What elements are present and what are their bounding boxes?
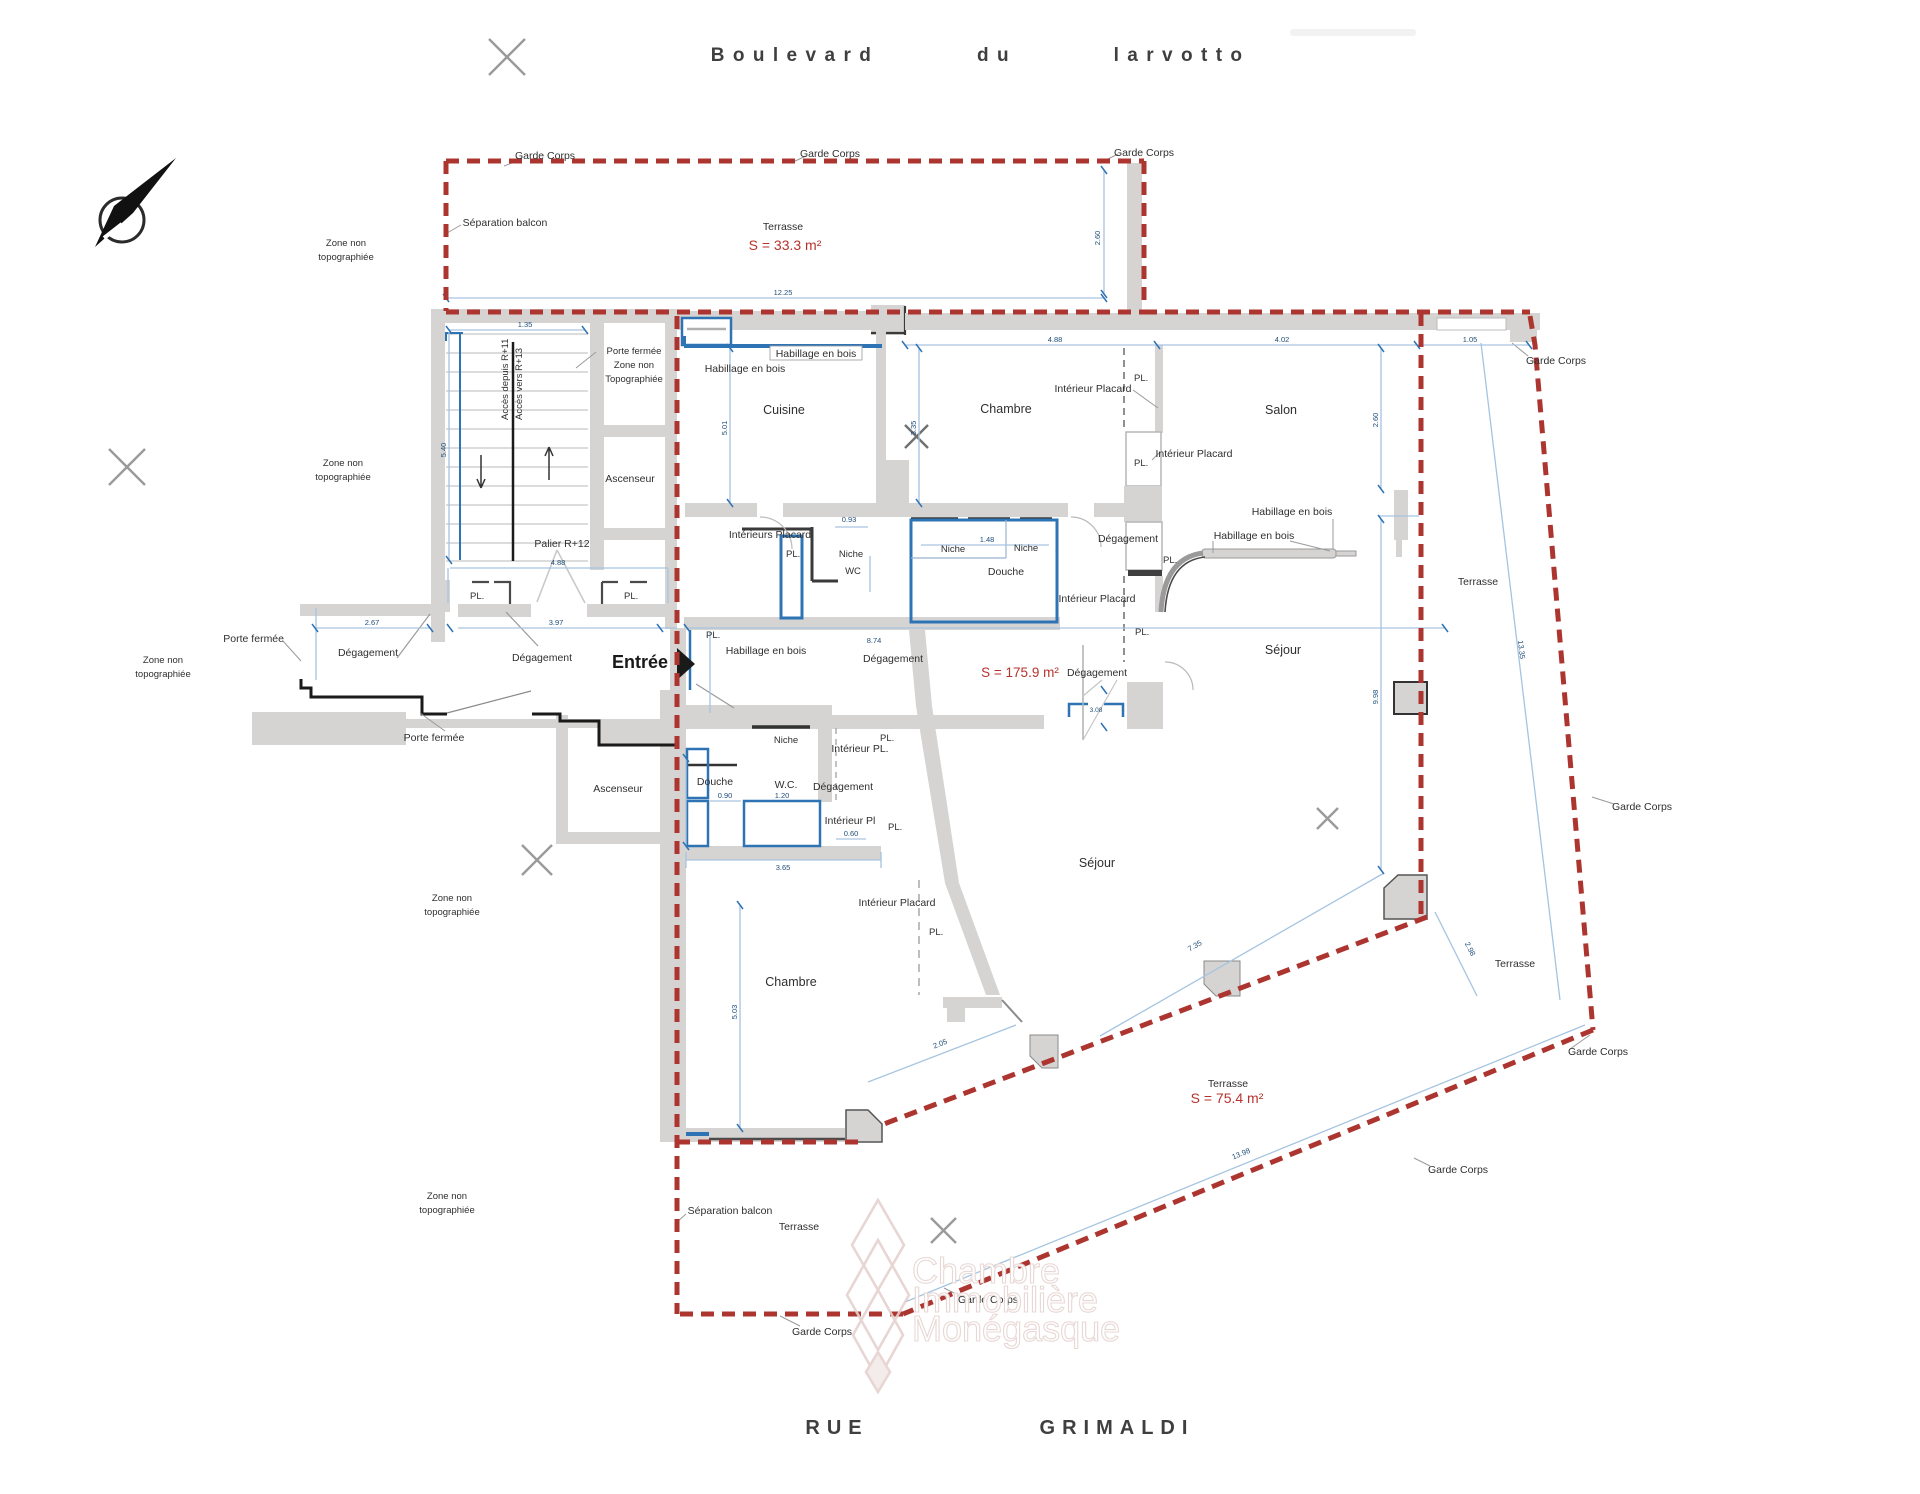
svg-text:GRIMALDI: GRIMALDI bbox=[1040, 1417, 1195, 1439]
svg-text:Accès vers R+13: Accès vers R+13 bbox=[514, 348, 525, 420]
svg-text:PL.: PL. bbox=[786, 549, 800, 560]
svg-text:3.08: 3.08 bbox=[1090, 707, 1103, 714]
svg-text:Terrasse: Terrasse bbox=[779, 1221, 819, 1233]
svg-text:Boulevard: Boulevard bbox=[711, 45, 880, 66]
svg-text:2.60: 2.60 bbox=[1093, 231, 1102, 246]
svg-text:3.97: 3.97 bbox=[549, 618, 564, 627]
svg-text:Habillage en bois: Habillage en bois bbox=[726, 645, 807, 657]
svg-text:Séjour: Séjour bbox=[1265, 643, 1301, 657]
svg-text:Zone non: Zone non bbox=[614, 360, 654, 371]
svg-text:9.98: 9.98 bbox=[1371, 690, 1380, 705]
svg-text:Dégagement: Dégagement bbox=[1067, 667, 1127, 679]
svg-text:Salon: Salon bbox=[1265, 403, 1297, 417]
svg-text:larvotto: larvotto bbox=[1114, 45, 1251, 66]
svg-text:Entrée: Entrée bbox=[612, 652, 668, 672]
svg-text:Garde Corps: Garde Corps bbox=[1114, 147, 1174, 159]
svg-text:Ascenseur: Ascenseur bbox=[605, 473, 655, 485]
svg-text:PL.: PL. bbox=[1134, 373, 1148, 384]
svg-text:Habillage en bois: Habillage en bois bbox=[1214, 530, 1295, 542]
svg-text:Cuisine: Cuisine bbox=[763, 403, 805, 417]
svg-text:Terrasse: Terrasse bbox=[763, 221, 803, 233]
svg-text:Séparation balcon: Séparation balcon bbox=[463, 217, 548, 229]
svg-text:PL.: PL. bbox=[1135, 627, 1149, 638]
svg-text:5.40: 5.40 bbox=[439, 443, 448, 458]
svg-text:Porte fermée: Porte fermée bbox=[223, 633, 284, 645]
svg-text:Garde Corps: Garde Corps bbox=[1612, 801, 1672, 813]
svg-text:12.25: 12.25 bbox=[774, 288, 793, 297]
svg-text:1.05: 1.05 bbox=[1463, 335, 1478, 344]
svg-text:2.67: 2.67 bbox=[365, 618, 380, 627]
svg-text:Douche: Douche bbox=[988, 566, 1024, 578]
svg-text:Habillage en bois: Habillage en bois bbox=[1252, 506, 1333, 518]
svg-text:Terrasse: Terrasse bbox=[1208, 1078, 1248, 1090]
svg-text:3.35: 3.35 bbox=[909, 421, 918, 436]
svg-text:Intérieur Placard: Intérieur Placard bbox=[1058, 593, 1135, 605]
svg-text:Niche: Niche bbox=[1014, 543, 1038, 554]
svg-text:RUE: RUE bbox=[805, 1417, 868, 1439]
svg-text:Garde Corps: Garde Corps bbox=[792, 1326, 852, 1338]
svg-text:du: du bbox=[977, 45, 1017, 66]
svg-text:Garde Corps: Garde Corps bbox=[1568, 1046, 1628, 1058]
svg-text:Monégasque: Monégasque bbox=[912, 1308, 1120, 1349]
svg-text:Habillage en bois: Habillage en bois bbox=[776, 348, 857, 360]
svg-text:Accès depuis R+11: Accès depuis R+11 bbox=[500, 339, 511, 420]
svg-text:PL.: PL. bbox=[706, 630, 720, 641]
svg-text:4.88: 4.88 bbox=[551, 558, 566, 567]
svg-text:Intérieurs Placard: Intérieurs Placard bbox=[729, 529, 811, 541]
svg-text:Intérieur Placard: Intérieur Placard bbox=[1054, 383, 1131, 395]
svg-text:S = 33.3 m²: S = 33.3 m² bbox=[749, 237, 822, 253]
svg-text:4.02: 4.02 bbox=[1275, 335, 1290, 344]
svg-text:Zone non: Zone non bbox=[323, 458, 363, 469]
svg-text:4.88: 4.88 bbox=[1048, 335, 1063, 344]
svg-text:Garde Corps: Garde Corps bbox=[800, 148, 860, 160]
svg-text:PL.: PL. bbox=[470, 591, 484, 602]
svg-text:topographiée: topographiée bbox=[315, 472, 370, 483]
svg-text:3.65: 3.65 bbox=[776, 863, 791, 872]
svg-text:2.60: 2.60 bbox=[1371, 413, 1380, 428]
svg-text:Ascenseur: Ascenseur bbox=[593, 783, 643, 795]
svg-text:5.01: 5.01 bbox=[720, 421, 729, 436]
svg-text:Dégagement: Dégagement bbox=[813, 781, 873, 793]
svg-text:8.74: 8.74 bbox=[867, 636, 882, 645]
svg-text:Dégagement: Dégagement bbox=[863, 653, 923, 665]
svg-text:topographiée: topographiée bbox=[318, 252, 373, 263]
svg-text:Terrasse: Terrasse bbox=[1458, 576, 1498, 588]
svg-text:Topographiée: Topographiée bbox=[605, 374, 663, 385]
svg-text:Terrasse: Terrasse bbox=[1495, 958, 1535, 970]
svg-text:Intérieur Placard: Intérieur Placard bbox=[858, 897, 935, 909]
svg-text:Niche: Niche bbox=[941, 544, 965, 555]
svg-text:PL.: PL. bbox=[624, 591, 638, 602]
svg-text:Dégagement: Dégagement bbox=[1098, 533, 1158, 545]
svg-text:0.60: 0.60 bbox=[844, 829, 859, 838]
svg-text:Dégagement: Dégagement bbox=[512, 652, 572, 664]
svg-text:Niche: Niche bbox=[774, 735, 798, 746]
svg-text:Porte fermée: Porte fermée bbox=[404, 732, 465, 744]
svg-text:topographiée: topographiée bbox=[424, 907, 479, 918]
svg-text:5.03: 5.03 bbox=[730, 1005, 739, 1020]
svg-text:0.90: 0.90 bbox=[718, 791, 733, 800]
svg-text:Douche: Douche bbox=[697, 776, 733, 788]
svg-text:Séparation balcon: Séparation balcon bbox=[688, 1205, 773, 1217]
svg-text:topographiée: topographiée bbox=[135, 669, 190, 680]
svg-text:Niche: Niche bbox=[839, 549, 863, 560]
svg-text:Garde Corps: Garde Corps bbox=[515, 150, 575, 162]
svg-text:Porte fermée: Porte fermée bbox=[607, 346, 662, 357]
svg-text:PL.: PL. bbox=[1134, 458, 1148, 469]
svg-text:WC: WC bbox=[845, 566, 861, 577]
svg-text:Palier R+12: Palier R+12 bbox=[534, 538, 589, 550]
svg-text:Zone non: Zone non bbox=[143, 655, 183, 666]
svg-text:Zone non: Zone non bbox=[427, 1191, 467, 1202]
svg-text:Intérieur PL.: Intérieur PL. bbox=[831, 743, 888, 755]
svg-text:Zone non: Zone non bbox=[432, 893, 472, 904]
svg-text:Garde Corps: Garde Corps bbox=[1428, 1164, 1488, 1176]
svg-text:S = 175.9 m²: S = 175.9 m² bbox=[981, 665, 1059, 680]
svg-text:0.93: 0.93 bbox=[842, 515, 857, 524]
svg-text:PL.: PL. bbox=[1163, 555, 1177, 566]
svg-text:Séjour: Séjour bbox=[1079, 856, 1115, 870]
svg-text:PL.: PL. bbox=[888, 822, 902, 833]
svg-text:1.20: 1.20 bbox=[775, 791, 790, 800]
svg-text:Dégagement: Dégagement bbox=[338, 647, 398, 659]
svg-text:Chambre: Chambre bbox=[765, 975, 816, 989]
svg-text:Chambre: Chambre bbox=[980, 402, 1031, 416]
svg-text:Intérieur Placard: Intérieur Placard bbox=[1155, 448, 1232, 460]
svg-text:Intérieur Pl: Intérieur Pl bbox=[825, 815, 876, 827]
svg-text:Habillage en bois: Habillage en bois bbox=[705, 363, 786, 375]
svg-text:W.C.: W.C. bbox=[775, 779, 798, 791]
svg-text:1.48: 1.48 bbox=[980, 535, 995, 544]
svg-text:Zone non: Zone non bbox=[326, 238, 366, 249]
svg-text:topographiée: topographiée bbox=[419, 1205, 474, 1216]
svg-text:1.35: 1.35 bbox=[518, 320, 533, 329]
svg-text:Garde Corps: Garde Corps bbox=[1526, 355, 1586, 367]
svg-text:S = 75.4 m²: S = 75.4 m² bbox=[1191, 1090, 1264, 1106]
svg-text:PL.: PL. bbox=[929, 927, 943, 938]
